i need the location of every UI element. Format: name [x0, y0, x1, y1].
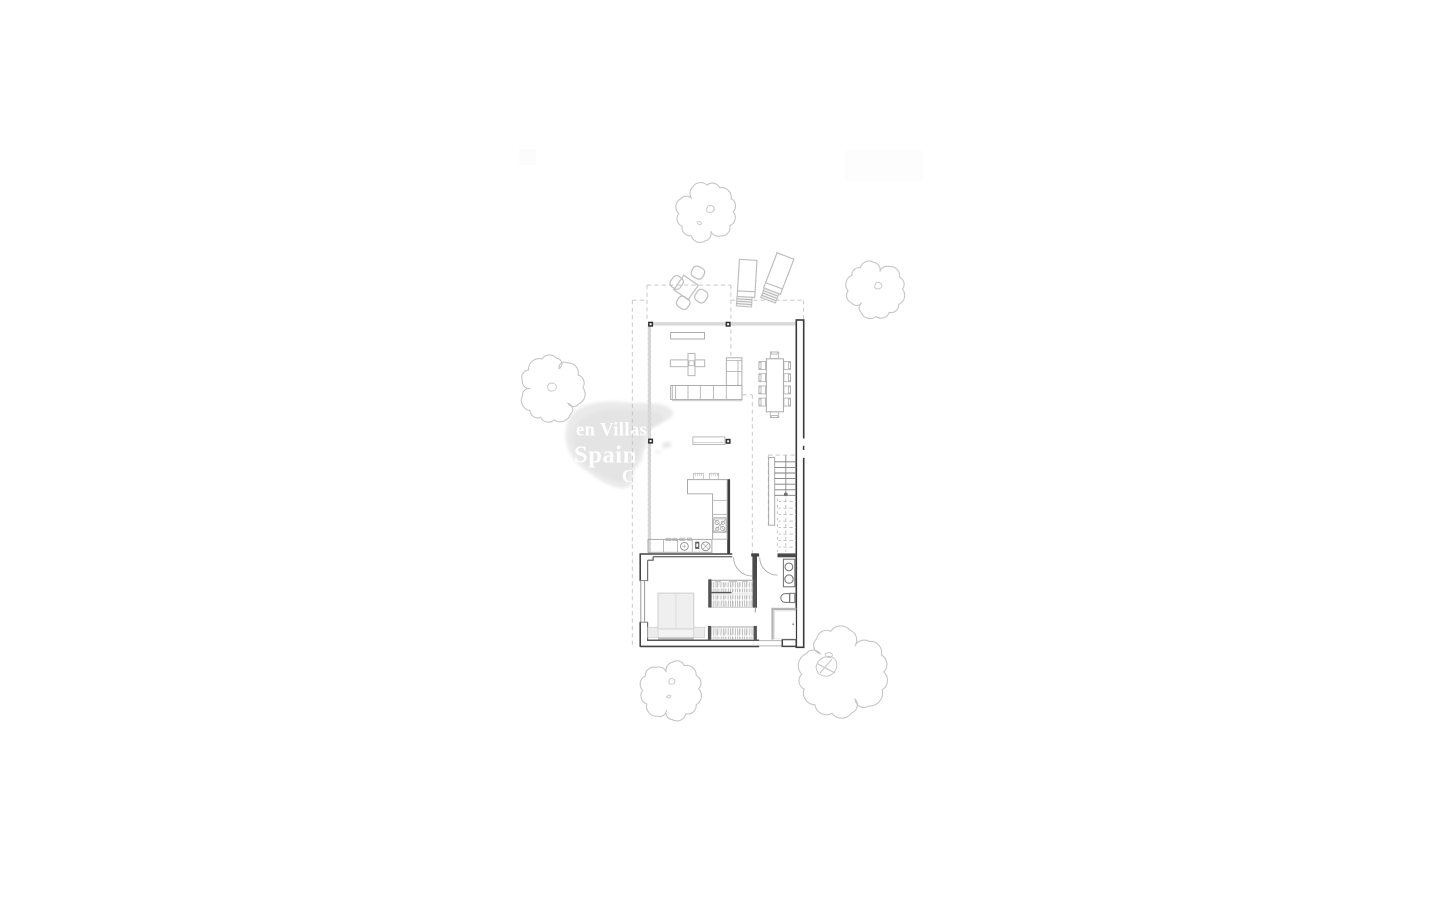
svg-text:en Villas: en Villas: [576, 420, 647, 441]
svg-text:C: C: [622, 466, 635, 486]
